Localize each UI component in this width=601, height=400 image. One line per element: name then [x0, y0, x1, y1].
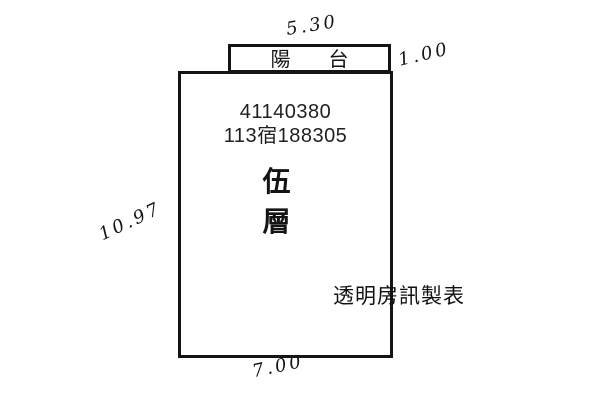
maker-watermark: 透明房訊製表	[333, 280, 465, 310]
floor-label-char-2: 層	[178, 202, 375, 242]
dimension-right-balcony-depth: 1.00	[396, 38, 451, 70]
building-number: 41140380	[178, 100, 393, 124]
registration-number: 113宿188305	[178, 124, 393, 148]
floor-label-char-1: 伍	[178, 162, 375, 202]
dimension-left-building-depth: 10.97	[96, 198, 165, 245]
dimension-top-balcony-width: 5.30	[285, 11, 340, 40]
balcony-label-char-1: 陽	[271, 49, 291, 69]
unit-id-block: 41140380 113宿188305	[178, 100, 393, 148]
floor-plan-page: 5.30 陽 台 1.00 41140380 113宿188305 伍 層 10…	[0, 0, 601, 400]
balcony-outline: 陽 台	[228, 44, 391, 73]
floor-label: 伍 層	[178, 162, 375, 242]
balcony-label-char-2: 台	[329, 49, 349, 69]
